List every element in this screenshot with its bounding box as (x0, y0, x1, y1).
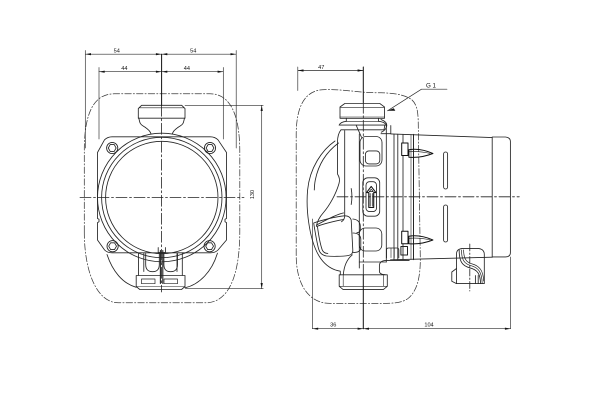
svg-text:104: 104 (424, 323, 433, 329)
svg-text:G 1: G 1 (426, 82, 437, 89)
svg-text:54: 54 (190, 48, 196, 54)
svg-text:44: 44 (121, 66, 127, 72)
svg-text:36: 36 (330, 323, 336, 329)
svg-text:47: 47 (318, 65, 324, 71)
svg-text:44: 44 (184, 66, 190, 72)
svg-text:130: 130 (250, 190, 256, 199)
svg-text:54: 54 (114, 48, 120, 54)
